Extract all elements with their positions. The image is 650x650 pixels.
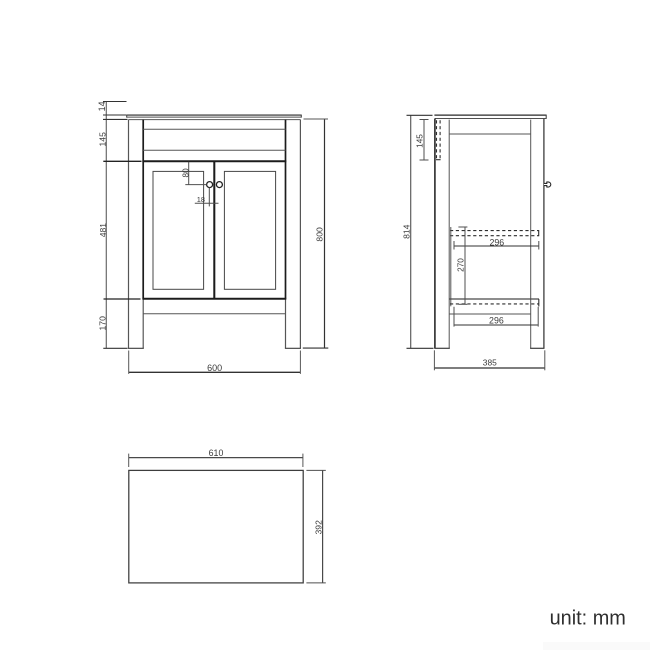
svg-text:814: 814 xyxy=(402,224,412,239)
svg-text:296: 296 xyxy=(489,237,504,247)
svg-text:392: 392 xyxy=(314,520,324,535)
svg-text:18: 18 xyxy=(197,195,205,204)
svg-text:unit: mm: unit: mm xyxy=(550,608,626,630)
svg-text:14: 14 xyxy=(97,101,107,111)
svg-text:270: 270 xyxy=(457,258,466,272)
svg-text:800: 800 xyxy=(315,227,325,242)
svg-text:170: 170 xyxy=(97,316,107,331)
svg-text:296: 296 xyxy=(489,315,504,325)
svg-text:610: 610 xyxy=(209,448,224,458)
svg-text:385: 385 xyxy=(483,358,497,368)
svg-text:481: 481 xyxy=(98,223,108,238)
svg-text:80: 80 xyxy=(181,168,190,178)
svg-text:145: 145 xyxy=(97,132,107,147)
svg-text:145: 145 xyxy=(415,134,424,148)
svg-text:600: 600 xyxy=(207,363,222,373)
